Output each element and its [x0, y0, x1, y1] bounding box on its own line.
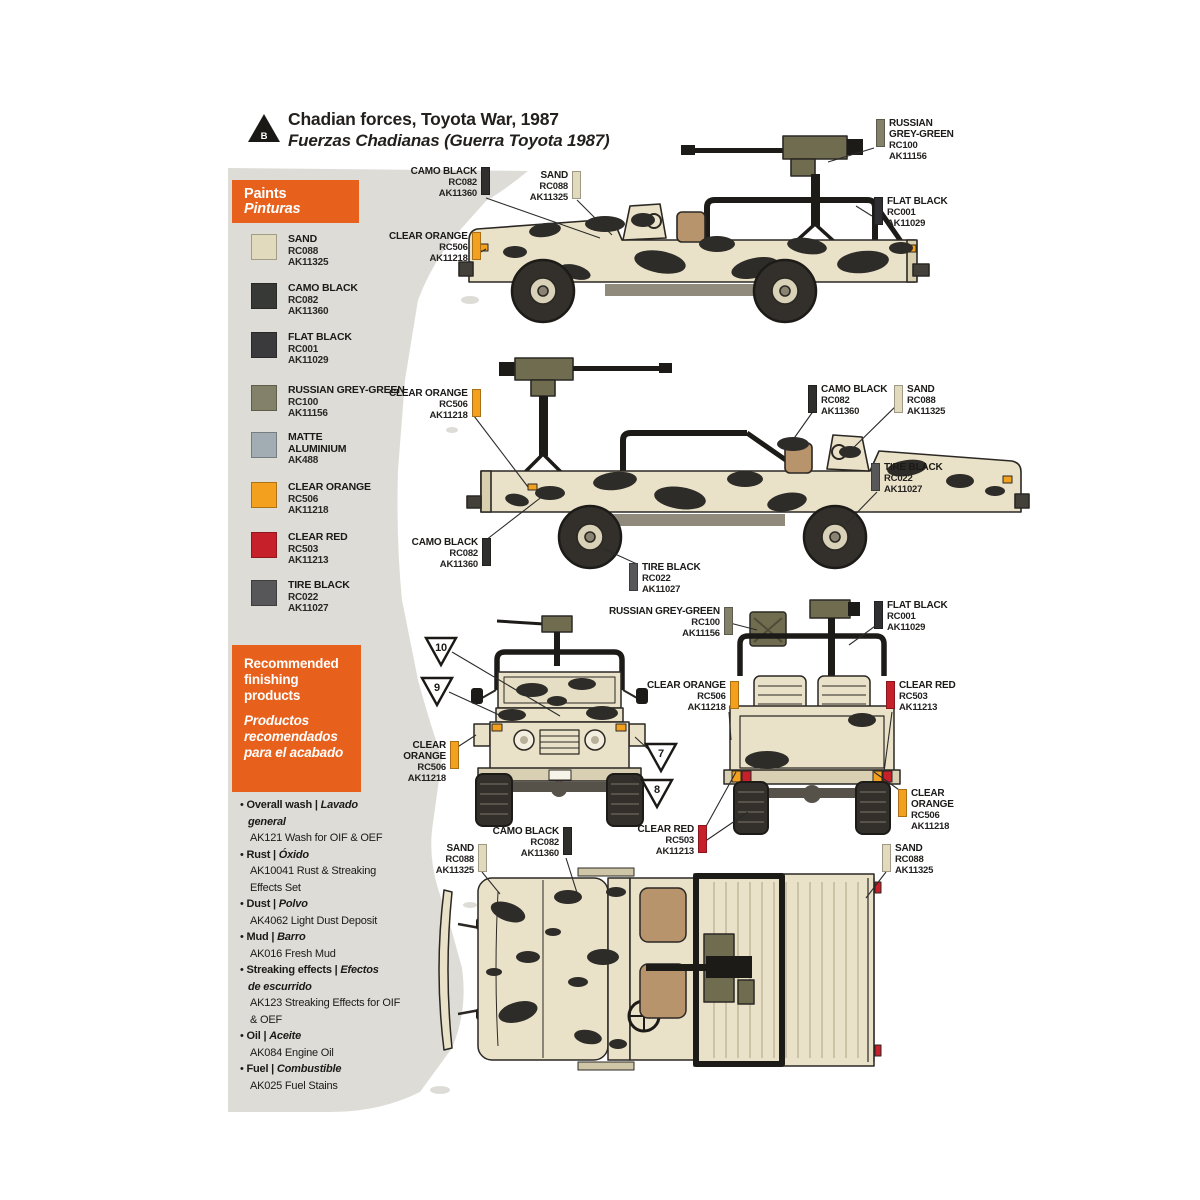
paint-color-bar	[882, 844, 891, 872]
finishing-name-en: Mud |	[247, 931, 275, 943]
callout-code: RC082	[407, 548, 478, 559]
swatch-label: MATTEALUMINIUMAK488	[288, 432, 346, 467]
paint-color-bar	[730, 681, 739, 709]
callout-name: CAMO BLACK	[406, 166, 477, 177]
finishing-name-en: Oil |	[247, 1030, 267, 1042]
callout-v3-clear-orange: CLEARORANGERC506AK11218	[395, 740, 459, 784]
paint-swatch: SANDRC088AK11325	[251, 234, 328, 269]
finishing-product: AK121 Wash for OIF & OEF	[250, 830, 408, 847]
callout-code: AK11360	[407, 559, 478, 570]
callout-code: RC082	[406, 177, 477, 188]
callout-v4-clear-orange-bottom: CLEARORANGERC506AK11218	[898, 788, 954, 832]
callout-text: CLEARORANGERC506AK11218	[911, 788, 954, 832]
callout-v2-camo-black-left: CAMO BLACKRC082AK11360	[407, 537, 491, 570]
finishing-item: • Dust | PolvoAK4062 Light Dust Deposit	[240, 896, 420, 929]
swatch-ak-code: AK11218	[288, 505, 371, 517]
callout-text: SANDRC088AK11325	[521, 170, 568, 203]
swatch-color-chip	[251, 580, 277, 606]
swatch-code: RC503	[288, 544, 347, 556]
svg-text:B: B	[261, 131, 268, 142]
callout-v2-clear-orange: CLEAR ORANGERC506AK11218	[389, 388, 479, 421]
callout-v5-sand-left: SANDRC088AK11325	[427, 843, 487, 876]
paint-color-bar	[876, 119, 885, 147]
paint-swatch: RUSSIAN GREY-GREENRC100AK11156	[251, 385, 405, 420]
callout-code: AK11029	[887, 622, 948, 633]
paint-color-bar	[472, 389, 481, 417]
callout-code: RC503	[633, 835, 694, 846]
triangle-number: 10	[435, 642, 447, 654]
finishing-heading: • Overall wash | Lavado general	[240, 797, 380, 830]
paint-color-bar	[894, 385, 903, 413]
callout-name: RUSSIAN GREY-GREEN	[609, 606, 720, 617]
callout-code: AK11360	[821, 406, 887, 417]
callout-v4-clear-red: CLEAR REDRC503AK11213	[886, 680, 956, 713]
callout-code: RC503	[899, 691, 956, 702]
callout-text: CLEAR ORANGERC506AK11218	[647, 680, 726, 713]
callout-code: RC506	[647, 691, 726, 702]
callout-code: RC082	[488, 837, 559, 848]
finishing-product: AK016 Fresh Mud	[250, 946, 408, 963]
callout-text: SANDRC088AK11325	[907, 384, 945, 417]
finishing-product: AK025 Fuel Stains	[250, 1078, 408, 1095]
swatch-label: CAMO BLACKRC082AK11360	[288, 283, 358, 318]
swatch-code: RC022	[288, 592, 350, 604]
finishing-name-en: Dust |	[247, 898, 276, 910]
callout-v5-sand-right: SANDRC088AK11325	[882, 843, 933, 876]
swatch-code: RC100	[288, 397, 405, 409]
swatch-label: CLEAR ORANGERC506AK11218	[288, 482, 371, 517]
callout-code: AK11325	[895, 865, 933, 876]
paint-color-bar	[481, 167, 490, 195]
callout-code: AK11325	[427, 865, 474, 876]
callout-v2-tire-black-bottom: TIRE BLACKRC022AK11027	[629, 562, 701, 595]
callout-code: AK11213	[633, 846, 694, 857]
paint-color-bar	[874, 197, 883, 225]
swatch-name: SAND	[288, 234, 328, 246]
callout-code: AK11156	[609, 628, 720, 639]
callout-code: RC022	[884, 473, 943, 484]
paint-swatch: CAMO BLACKRC082AK11360	[251, 283, 358, 318]
callout-name: ORANGE	[395, 751, 446, 762]
swatch-ak-code: AK11325	[288, 257, 328, 269]
paint-swatch: FLAT BLACKRC001AK11029	[251, 332, 352, 367]
callout-code: RC088	[907, 395, 945, 406]
callout-v2-sand: SANDRC088AK11325	[894, 384, 945, 417]
callout-name: FLAT BLACK	[887, 600, 948, 611]
finishing-title-es: Productos recomendados para el acabado	[244, 713, 351, 761]
callout-v2-camo-black-right: CAMO BLACKRC082AK11360	[808, 384, 887, 417]
swatch-ak-code: AK11029	[288, 355, 352, 367]
paint-color-bar	[472, 232, 481, 260]
callout-v1-russian-grey-green: RUSSIANGREY-GREENRC100AK11156	[876, 118, 954, 162]
triangle-marker-10: 10	[424, 636, 458, 668]
callout-name: FLAT BLACK	[887, 196, 948, 207]
triangle-marker-8: 8	[640, 778, 674, 810]
callout-code: AK11218	[389, 410, 468, 421]
callout-code: RC082	[821, 395, 887, 406]
swatch-label: TIRE BLACKRC022AK11027	[288, 580, 350, 615]
callout-name: GREY-GREEN	[889, 129, 954, 140]
callout-text: CLEAR ORANGERC506AK11218	[389, 231, 468, 264]
swatch-label: FLAT BLACKRC001AK11029	[288, 332, 352, 367]
swatch-name: MATTE	[288, 432, 346, 444]
callout-v1-flat-black: FLAT BLACKRC001AK11029	[874, 196, 948, 229]
callout-name: CAMO BLACK	[488, 826, 559, 837]
callout-v1-clear-orange: CLEAR ORANGERC506AK11218	[389, 231, 479, 264]
finishing-heading: • Fuel | Combustible	[240, 1061, 380, 1078]
callout-text: RUSSIANGREY-GREENRC100AK11156	[889, 118, 954, 162]
triangle-number: 9	[434, 682, 440, 694]
triangle-number: 8	[654, 784, 660, 796]
swatch-code: RC088	[288, 246, 328, 258]
callout-v1-camo-black: CAMO BLACKRC082AK11360	[406, 166, 490, 199]
finishing-product: AK10041 Rust & Streaking Effects Set	[250, 863, 408, 896]
callout-v4-clear-red-bottom: CLEAR REDRC503AK11213	[633, 824, 707, 857]
callout-text: CAMO BLACKRC082AK11360	[407, 537, 478, 570]
callout-text: CLEARORANGERC506AK11218	[395, 740, 446, 784]
callout-code: AK11218	[911, 821, 954, 832]
finishing-item: • Streaking effects | Efectos de escurri…	[240, 962, 420, 1028]
callout-name: SAND	[427, 843, 474, 854]
paint-color-bar	[886, 681, 895, 709]
paint-color-bar	[450, 741, 459, 769]
callout-name: TIRE BLACK	[884, 462, 943, 473]
callout-v4-flat-black: FLAT BLACKRC001AK11029	[874, 600, 948, 633]
paint-swatch: CLEAR REDRC503AK11213	[251, 532, 347, 567]
callout-text: TIRE BLACKRC022AK11027	[642, 562, 701, 595]
triangle-marker-7: 7	[644, 742, 678, 774]
callout-code: AK11218	[647, 702, 726, 713]
swatch-code: RC001	[288, 344, 352, 356]
callout-name: ORANGE	[911, 799, 954, 810]
callout-text: CAMO BLACKRC082AK11360	[821, 384, 887, 417]
swatch-label: RUSSIAN GREY-GREENRC100AK11156	[288, 385, 405, 420]
callout-name: CLEAR ORANGE	[389, 231, 468, 242]
paint-swatch: TIRE BLACKRC022AK11027	[251, 580, 350, 615]
callout-code: AK11213	[899, 702, 956, 713]
finishing-name-es: Barro	[277, 931, 305, 943]
machine-gun-icon	[499, 358, 672, 474]
finishing-heading: • Mud | Barro	[240, 929, 380, 946]
callout-v5-camo-black: CAMO BLACKRC082AK11360	[488, 826, 572, 859]
callout-text: SANDRC088AK11325	[895, 843, 933, 876]
finishing-title-en: Recommended finishing products	[244, 656, 351, 704]
finishing-name-es: Polvo	[279, 898, 308, 910]
finishing-item: • Overall wash | Lavado generalAK121 Was…	[240, 797, 420, 847]
finishing-name-en: Rust |	[247, 849, 276, 861]
callout-code: RC088	[427, 854, 474, 865]
paint-swatch: CLEAR ORANGERC506AK11218	[251, 482, 371, 517]
paint-color-bar	[572, 171, 581, 199]
vehicle-front-view	[452, 612, 667, 847]
swatch-color-chip	[251, 234, 277, 260]
vehicle-top-view	[428, 862, 908, 1077]
paint-color-bar	[482, 538, 491, 566]
finishing-item: • Oil | AceiteAK084 Engine Oil	[240, 1028, 420, 1061]
callout-text: SANDRC088AK11325	[427, 843, 474, 876]
swatch-name: TIRE BLACK	[288, 580, 350, 592]
callout-name: CLEAR	[911, 788, 954, 799]
callout-code: AK11029	[887, 218, 948, 229]
callout-code: RC100	[889, 140, 954, 151]
callout-name: RUSSIAN	[889, 118, 954, 129]
finishing-heading: • Streaking effects | Efectos de escurri…	[240, 962, 380, 995]
swatch-name: FLAT BLACK	[288, 332, 352, 344]
callout-text: CLEAR REDRC503AK11213	[633, 824, 694, 857]
callout-v1-sand: SANDRC088AK11325	[521, 170, 581, 203]
paints-panel-header: Paints Pinturas	[232, 180, 359, 223]
callout-text: RUSSIAN GREY-GREENRC100AK11156	[609, 606, 720, 639]
callout-code: RC100	[609, 617, 720, 628]
swatch-code: RC082	[288, 295, 358, 307]
callout-code: RC088	[521, 181, 568, 192]
finishing-heading: • Dust | Polvo	[240, 896, 380, 913]
swatch-ak-code: AK11360	[288, 306, 358, 318]
callout-name: SAND	[895, 843, 933, 854]
callout-code: RC506	[395, 762, 446, 773]
finishing-panel-header: Recommended finishing products Productos…	[232, 645, 361, 792]
callout-name: CAMO BLACK	[407, 537, 478, 548]
callout-name: CLEAR	[395, 740, 446, 751]
finishing-heading: • Rust | Óxido	[240, 847, 380, 864]
swatch-ak-code: AK11027	[288, 603, 350, 615]
paint-color-bar	[478, 844, 487, 872]
callout-text: CAMO BLACKRC082AK11360	[406, 166, 477, 199]
callout-name: TIRE BLACK	[642, 562, 701, 573]
callout-text: FLAT BLACKRC001AK11029	[887, 196, 948, 229]
finishing-name-en: Streaking effects |	[247, 964, 338, 976]
callout-code: AK11218	[389, 253, 468, 264]
paint-color-bar	[629, 563, 638, 591]
finishing-item: • Mud | BarroAK016 Fresh Mud	[240, 929, 420, 962]
vehicle-rear-view	[712, 598, 912, 848]
callout-code: AK11325	[907, 406, 945, 417]
finishing-product-list: • Overall wash | Lavado generalAK121 Was…	[240, 797, 420, 1094]
finishing-name-en: Overall wash |	[247, 799, 318, 811]
swatch-color-chip	[251, 332, 277, 358]
triangle-number: 7	[658, 748, 664, 760]
vehicle-side-view-2	[455, 340, 1035, 585]
swatch-color-chip	[251, 532, 277, 558]
paint-color-bar	[874, 601, 883, 629]
callout-code: RC022	[642, 573, 701, 584]
callout-v4-clear-orange: CLEAR ORANGERC506AK11218	[647, 680, 737, 713]
swatch-color-chip	[251, 385, 277, 411]
swatch-color-chip	[251, 432, 277, 458]
callout-name: CLEAR ORANGE	[647, 680, 726, 691]
section-marker-icon: B	[246, 112, 282, 144]
triangle-marker-9: 9	[420, 676, 454, 708]
jerry-can-icon	[750, 612, 786, 646]
paint-color-bar	[808, 385, 817, 413]
callout-text: CLEAR REDRC503AK11213	[899, 680, 956, 713]
callout-text: TIRE BLACKRC022AK11027	[884, 462, 943, 495]
callout-name: CLEAR RED	[899, 680, 956, 691]
callout-code: AK11325	[521, 192, 568, 203]
paint-color-bar	[698, 825, 707, 853]
callout-code: RC088	[895, 854, 933, 865]
callout-code: AK11218	[395, 773, 446, 784]
callout-text: FLAT BLACKRC001AK11029	[887, 600, 948, 633]
finishing-name-es: Óxido	[279, 849, 309, 861]
swatch-label: CLEAR REDRC503AK11213	[288, 532, 347, 567]
finishing-item: • Rust | ÓxidoAK10041 Rust & Streaking E…	[240, 847, 420, 897]
callout-code: RC001	[887, 611, 948, 622]
swatch-ak-code: AK11213	[288, 555, 347, 567]
instruction-sheet-page: B Chadian forces, Toyota War, 1987 Fuerz…	[0, 0, 1200, 1200]
callout-name: CLEAR ORANGE	[389, 388, 468, 399]
callout-v2-tire-black-right: TIRE BLACKRC022AK11027	[871, 462, 943, 495]
finishing-product: AK123 Streaking Effects for OIF & OEF	[250, 995, 408, 1028]
callout-name: SAND	[521, 170, 568, 181]
swatch-name: CLEAR RED	[288, 532, 347, 544]
swatch-color-chip	[251, 482, 277, 508]
swatch-label: SANDRC088AK11325	[288, 234, 328, 269]
swatch-name: ALUMINIUM	[288, 444, 346, 456]
callout-code: RC506	[389, 242, 468, 253]
machine-gun-icon	[497, 616, 572, 666]
swatch-ak-code: AK488	[288, 455, 346, 467]
finishing-name-en: Fuel |	[247, 1063, 275, 1075]
callout-code: AK11027	[884, 484, 943, 495]
finishing-item: • Fuel | CombustibleAK025 Fuel Stains	[240, 1061, 420, 1094]
swatch-name: CLEAR ORANGE	[288, 482, 371, 494]
callout-name: SAND	[907, 384, 945, 395]
swatch-name: RUSSIAN GREY-GREEN	[288, 385, 405, 397]
callout-text: CAMO BLACKRC082AK11360	[488, 826, 559, 859]
callout-v4-russian-grey-green: RUSSIAN GREY-GREENRC100AK11156	[609, 606, 731, 639]
paint-color-bar	[898, 789, 907, 817]
paints-title-en: Paints	[244, 187, 349, 202]
paint-swatch: MATTEALUMINIUMAK488	[251, 432, 346, 467]
finishing-heading: • Oil | Aceite	[240, 1028, 380, 1045]
finishing-name-es: Aceite	[269, 1030, 301, 1042]
callout-text: CLEAR ORANGERC506AK11218	[389, 388, 468, 421]
callout-name: CLEAR RED	[633, 824, 694, 835]
callout-name: CAMO BLACK	[821, 384, 887, 395]
finishing-product: AK084 Engine Oil	[250, 1045, 408, 1062]
paint-color-bar	[871, 463, 880, 491]
swatch-ak-code: AK11156	[288, 408, 405, 420]
swatch-color-chip	[251, 283, 277, 309]
callout-code: AK11156	[889, 151, 954, 162]
finishing-product: AK4062 Light Dust Deposit	[250, 913, 408, 930]
callout-code: RC506	[389, 399, 468, 410]
swatch-code: RC506	[288, 494, 371, 506]
paint-color-bar	[724, 607, 733, 635]
callout-code: AK11027	[642, 584, 701, 595]
paint-color-bar	[563, 827, 572, 855]
paints-title-es: Pinturas	[244, 202, 349, 217]
callout-code: RC001	[887, 207, 948, 218]
callout-code: RC506	[911, 810, 954, 821]
finishing-name-es: Combustible	[277, 1063, 341, 1075]
callout-code: AK11360	[406, 188, 477, 199]
swatch-name: CAMO BLACK	[288, 283, 358, 295]
callout-code: AK11360	[488, 848, 559, 859]
